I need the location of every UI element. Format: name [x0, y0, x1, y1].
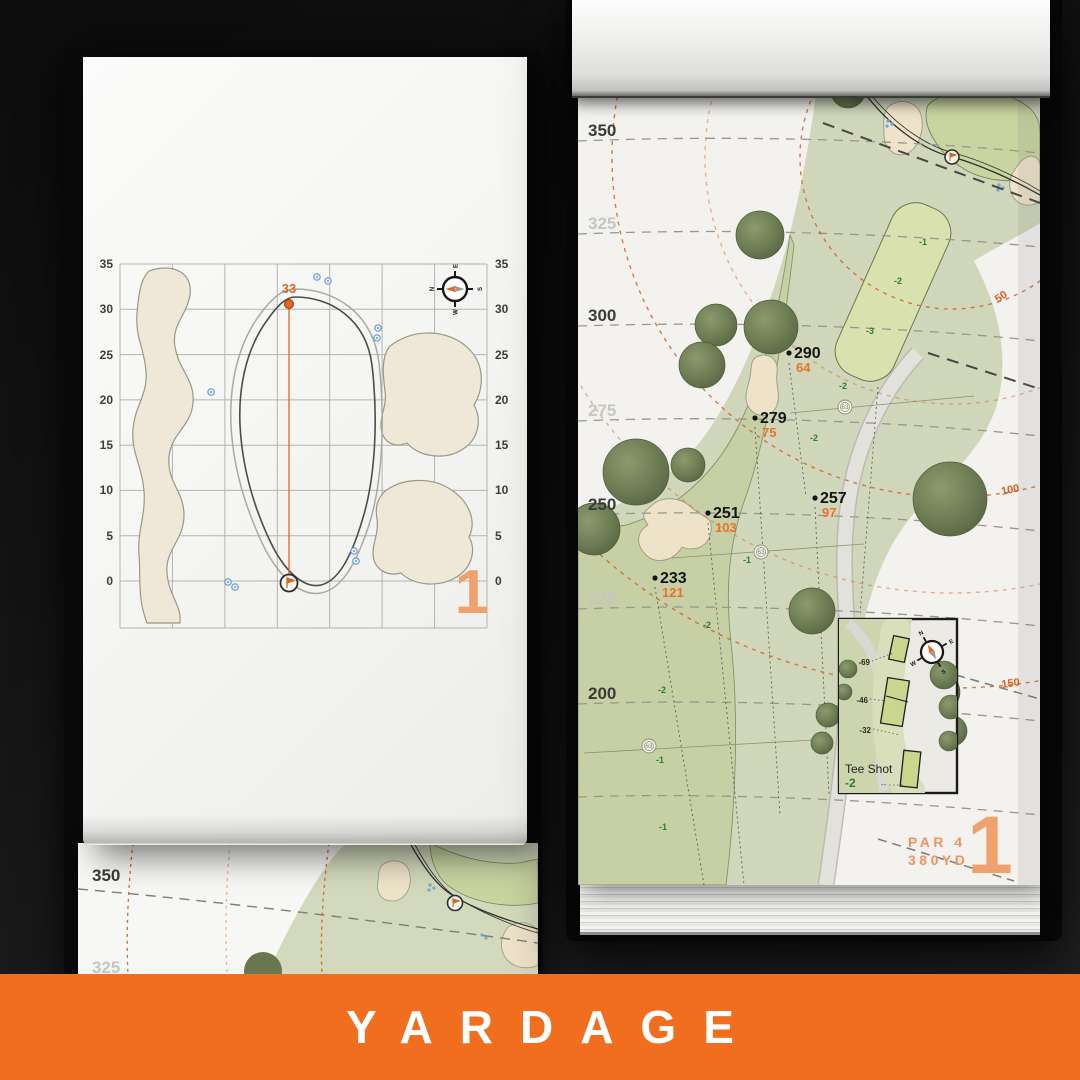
green-outline-inner: [240, 297, 375, 586]
svg-text:0: 0: [106, 574, 113, 588]
yardage-banner: YARDAGE: [0, 974, 1080, 1080]
svg-text:275: 275: [588, 401, 616, 420]
hole-1-map: 63 63 63 -1 -2 -3 -2: [578, 95, 1040, 885]
yardage-label: 380YD: [908, 852, 968, 868]
pin-distance-label: 33: [282, 281, 296, 296]
svg-text:63: 63: [757, 549, 765, 556]
svg-text:-2: -2: [658, 685, 666, 695]
under-label-350: 350: [92, 866, 120, 885]
under-page-map: 350 325: [78, 843, 538, 975]
svg-text:300: 300: [588, 306, 616, 325]
svg-text:20: 20: [495, 393, 509, 407]
svg-text:63: 63: [841, 404, 849, 411]
right-book-hole-page: 63 63 63 -1 -2 -3 -2: [578, 95, 1040, 885]
svg-text:30: 30: [495, 302, 509, 316]
tee-shot-value: -2: [845, 776, 856, 790]
svg-text:35: 35: [495, 257, 509, 271]
svg-text:-1: -1: [743, 555, 751, 565]
right-book-page-stack: [580, 884, 1040, 935]
svg-text:-1: -1: [659, 822, 667, 832]
tee-shot-dots: --: [881, 780, 887, 789]
svg-text:35: 35: [100, 257, 114, 271]
left-book-under-page: 350 325: [78, 843, 538, 975]
under-bunker-1: [378, 861, 411, 901]
svg-text:121: 121: [662, 585, 684, 600]
svg-text:350: 350: [588, 121, 616, 140]
svg-text:103: 103: [715, 520, 737, 535]
svg-text:-2: -2: [894, 276, 902, 286]
hole-number: 1: [455, 558, 489, 627]
flag-marker: [281, 575, 298, 592]
flag-marker: [945, 150, 959, 164]
svg-text:15: 15: [100, 438, 114, 452]
svg-text:200: 200: [588, 684, 616, 703]
svg-text:N: N: [430, 287, 436, 291]
hole-number: 1: [967, 800, 1013, 885]
svg-text:15: 15: [495, 438, 509, 452]
axis-left: 35 30 25 20 15 10 5 0: [100, 257, 114, 588]
svg-text:20: 20: [100, 393, 114, 407]
yardage-title: YARDAGE: [319, 1000, 761, 1054]
svg-text:5: 5: [495, 529, 502, 543]
under-flag-marker: [448, 896, 463, 911]
green-outline-outer: [231, 289, 382, 594]
tee-shot-inset: -69 -46 -32 Tee Shot -2 --: [836, 619, 966, 793]
svg-text:10: 10: [100, 483, 114, 497]
tee-shot-title: Tee Shot: [845, 762, 893, 776]
svg-text:-3: -3: [866, 326, 874, 336]
svg-text:30: 30: [100, 302, 114, 316]
compass-icon: N E S W: [430, 264, 484, 315]
svg-text:325: 325: [588, 214, 616, 233]
svg-text:25: 25: [495, 348, 509, 362]
right-book-flipped-page: [572, 0, 1050, 98]
page-edge-shade: [1018, 95, 1040, 885]
tee-label-32: -32: [859, 726, 871, 735]
par-label: PAR 4: [908, 834, 966, 850]
svg-text:10: 10: [495, 483, 509, 497]
yardage-book-mockup: 350 325 35 30 25 20 1: [0, 0, 1080, 1080]
green-detail-map: 35 30 25 20 15 10 5 0 35 30 25 20 15 10 …: [83, 57, 527, 845]
axis-right: 35 30 25 20 15 10 5 0: [495, 257, 509, 588]
pin-point: [285, 300, 294, 309]
svg-text:75: 75: [762, 425, 776, 440]
svg-text:63: 63: [645, 743, 653, 750]
tee-label-46: -46: [856, 696, 868, 705]
svg-text:0: 0: [495, 574, 502, 588]
svg-text:225: 225: [588, 589, 616, 608]
svg-text:-2: -2: [839, 381, 847, 391]
svg-text:S: S: [478, 287, 484, 291]
svg-text:W: W: [454, 309, 460, 315]
left-book-top-page: 35 30 25 20 15 10 5 0 35 30 25 20 15 10 …: [83, 57, 527, 845]
svg-text:5: 5: [106, 529, 113, 543]
svg-text:25: 25: [100, 348, 114, 362]
svg-text:64: 64: [796, 360, 811, 375]
under-label-325: 325: [92, 958, 120, 975]
svg-text:250: 250: [588, 495, 616, 514]
svg-text:E: E: [454, 264, 460, 268]
tee-label-69: -69: [858, 658, 870, 667]
svg-text:-2: -2: [703, 620, 711, 630]
svg-text:-2: -2: [810, 433, 818, 443]
svg-text:-1: -1: [656, 755, 664, 765]
svg-text:150: 150: [1001, 677, 1021, 691]
svg-text:97: 97: [822, 505, 836, 520]
svg-text:-1: -1: [919, 237, 927, 247]
